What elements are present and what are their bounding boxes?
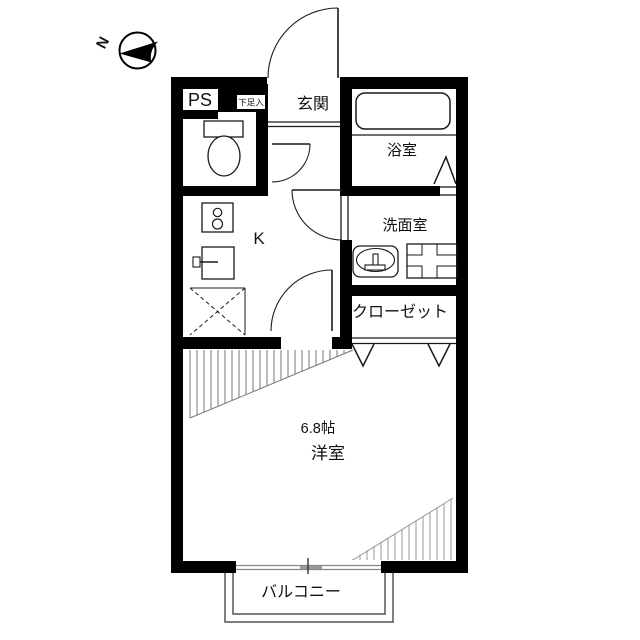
- washer-pan-cell: [437, 244, 457, 255]
- stove-burner-icon: [213, 208, 221, 216]
- room-label: 洋室: [311, 444, 345, 463]
- stove-burner-icon: [213, 219, 223, 229]
- floorplan: N: [0, 0, 640, 640]
- wall-washroom-closet: [340, 285, 456, 296]
- doors: [268, 8, 342, 331]
- washer-pan-cell: [407, 266, 422, 278]
- hatch-envelope: [190, 350, 353, 418]
- toilet-bowl: [208, 136, 240, 176]
- closet-folding-door-icon: [428, 344, 450, 366]
- toilet: [204, 121, 243, 176]
- washer-pan: [407, 244, 457, 278]
- room-size-label: 6.8帖: [301, 420, 336, 437]
- ps-label: PS: [188, 90, 212, 110]
- kitchen-faucet-icon: [193, 257, 200, 267]
- closet-folding-door-icon: [352, 344, 374, 366]
- hall-door-arc: [272, 144, 310, 182]
- entrance-label: 玄関: [297, 95, 329, 113]
- toilet-tank: [204, 121, 243, 137]
- kitchen-fixtures: [190, 203, 245, 335]
- washroom-label: 洗面室: [382, 217, 427, 234]
- closet-label: クローゼット: [352, 303, 448, 321]
- vanity-sink: [353, 246, 398, 277]
- compass-north-label: N: [93, 34, 113, 52]
- shoe-storage-label: 下足入: [238, 98, 264, 108]
- balcony-label: バルコニー: [261, 584, 341, 601]
- washer-pan-outline: [407, 244, 457, 278]
- kitchen-label: K: [253, 229, 265, 248]
- entrance-door-arc: [268, 8, 338, 78]
- kitchen-sink: [202, 247, 234, 279]
- wall-door-block: [332, 337, 352, 349]
- shoe-storage-plate: 下足入: [237, 95, 265, 109]
- bathroom-label: 浴室: [387, 142, 417, 159]
- bathtub: [356, 93, 450, 129]
- wall-left: [171, 77, 183, 573]
- wall-right: [456, 77, 468, 573]
- hatch-area-topleft: [190, 350, 353, 418]
- wall-bottom-right: [381, 561, 468, 573]
- stove: [202, 203, 233, 232]
- balcony-window: [236, 558, 381, 574]
- hatch-area-bottomright: [353, 498, 453, 560]
- compass-north: N: [93, 33, 158, 69]
- wall-bath-bottom: [352, 186, 440, 196]
- wall-bottom-left: [171, 561, 236, 573]
- bath-folding-door-icon: [434, 157, 456, 184]
- wall-hall-bath: [340, 89, 352, 196]
- room-door-arc: [271, 270, 332, 331]
- wall-toilet-bottom: [183, 186, 268, 196]
- floorplan-canvas: N: [0, 0, 640, 640]
- washer-pan-cell: [437, 266, 457, 278]
- wall-top-right: [340, 77, 468, 89]
- vanity-faucet-base: [365, 265, 385, 270]
- washer-pan-cell: [407, 244, 422, 255]
- hatch-envelope: [353, 498, 453, 560]
- wall-kitchen-room: [183, 337, 281, 349]
- washroom-door-arc: [292, 190, 342, 240]
- wall-below-ps: [183, 110, 218, 119]
